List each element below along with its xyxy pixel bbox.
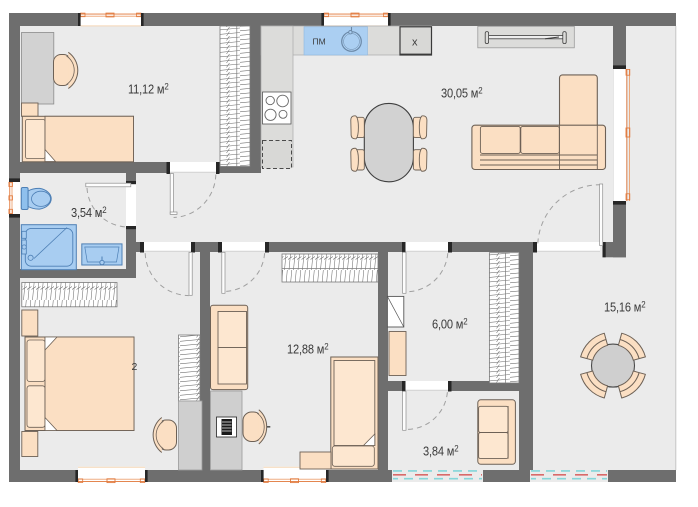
svg-text:12,88 м2: 12,88 м2 — [287, 341, 329, 357]
svg-text:6,00 м2: 6,00 м2 — [432, 316, 468, 332]
svg-text:15,16 м2: 15,16 м2 — [604, 299, 646, 315]
svg-text:3,84 м2: 3,84 м2 — [423, 443, 459, 459]
svg-text:3,54 м2: 3,54 м2 — [71, 205, 107, 221]
svg-text:2: 2 — [132, 361, 138, 373]
svg-text:30,05 м2: 30,05 м2 — [441, 85, 483, 101]
svg-text:x: x — [412, 37, 418, 49]
svg-text:11,12 м2: 11,12 м2 — [128, 81, 169, 97]
svg-text:ПМ: ПМ — [313, 37, 326, 47]
